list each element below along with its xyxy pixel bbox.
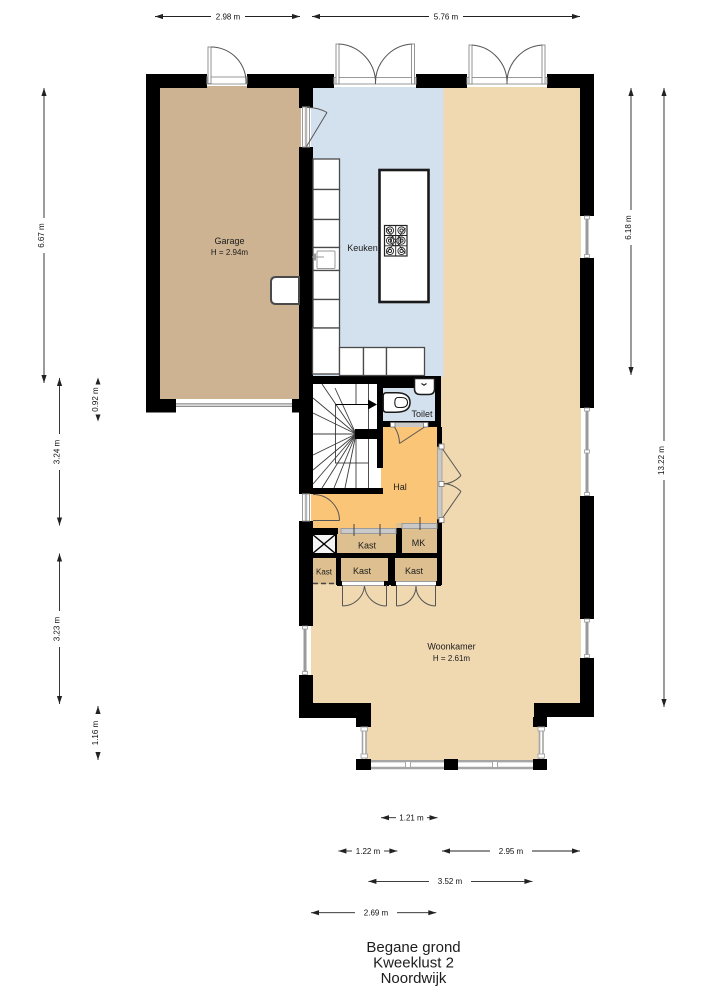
svg-text:Kast: Kast (405, 566, 424, 576)
svg-text:H = 2.61m: H = 2.61m (433, 654, 470, 663)
svg-text:Toilet: Toilet (411, 409, 433, 419)
svg-text:5.76 m: 5.76 m (434, 12, 459, 21)
svg-text:Kweeklust 2: Kweeklust 2 (373, 955, 454, 972)
svg-text:0.92 m: 0.92 m (91, 387, 100, 412)
svg-text:13.22 m: 13.22 m (657, 446, 666, 475)
svg-text:MK: MK (412, 538, 426, 548)
svg-text:Keuken: Keuken (347, 243, 378, 253)
svg-text:Hal: Hal (393, 482, 407, 492)
svg-text:1.16 m: 1.16 m (91, 720, 100, 745)
svg-text:1.21 m: 1.21 m (399, 814, 424, 823)
svg-text:Kast: Kast (353, 566, 372, 576)
svg-text:1.22 m: 1.22 m (356, 847, 381, 856)
svg-text:Noordwijk: Noordwijk (381, 970, 447, 987)
svg-text:Kast: Kast (358, 541, 377, 551)
svg-text:Woonkamer: Woonkamer (427, 642, 475, 652)
svg-text:6.18 m: 6.18 m (624, 215, 633, 240)
svg-text:3.52 m: 3.52 m (438, 877, 463, 886)
svg-text:Begane grond: Begane grond (366, 939, 460, 956)
svg-text:Garage: Garage (214, 236, 244, 246)
svg-text:6.67 m: 6.67 m (37, 223, 46, 248)
svg-text:H = 2.94m: H = 2.94m (211, 248, 248, 257)
svg-text:2.98 m: 2.98 m (216, 12, 241, 21)
svg-text:Kast: Kast (316, 568, 333, 577)
svg-text:2.95 m: 2.95 m (499, 847, 524, 856)
svg-text:2.69 m: 2.69 m (364, 909, 389, 918)
svg-text:3.24 m: 3.24 m (53, 439, 62, 464)
svg-text:3.23 m: 3.23 m (53, 616, 62, 641)
